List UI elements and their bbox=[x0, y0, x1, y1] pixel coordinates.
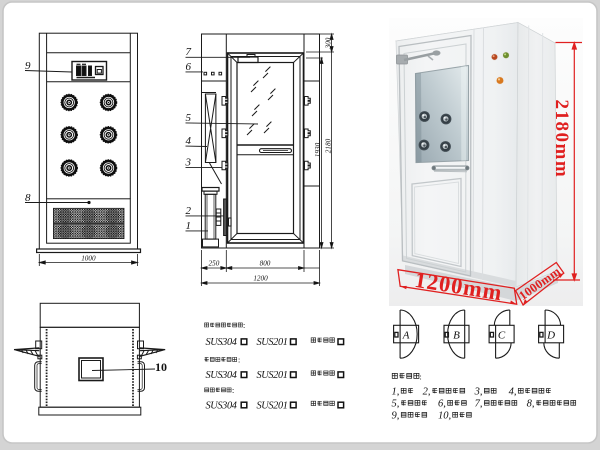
svg-text::: : bbox=[243, 321, 245, 330]
svg-text:3,: 3, bbox=[474, 386, 483, 397]
svg-text:SUS201: SUS201 bbox=[257, 337, 288, 348]
svg-text::: : bbox=[238, 356, 240, 365]
svg-text:7,: 7, bbox=[475, 399, 483, 410]
svg-text:2: 2 bbox=[186, 205, 192, 217]
svg-text:SUS304: SUS304 bbox=[206, 337, 237, 348]
svg-text:8,: 8, bbox=[527, 399, 535, 410]
svg-text:SUS201: SUS201 bbox=[257, 400, 288, 411]
svg-text:SUS201: SUS201 bbox=[257, 370, 288, 381]
svg-text::: : bbox=[420, 373, 422, 382]
svg-text:250: 250 bbox=[209, 260, 220, 268]
svg-text:1: 1 bbox=[186, 220, 192, 232]
svg-text:10: 10 bbox=[155, 360, 167, 374]
svg-text:1200: 1200 bbox=[253, 275, 268, 283]
svg-text:9,: 9, bbox=[392, 410, 400, 421]
svg-text:3: 3 bbox=[185, 157, 192, 169]
svg-text:B: B bbox=[453, 330, 460, 342]
svg-text:SUS304: SUS304 bbox=[206, 370, 237, 381]
svg-text:C: C bbox=[498, 330, 506, 342]
svg-text:5: 5 bbox=[186, 112, 192, 124]
svg-text:800: 800 bbox=[260, 260, 271, 268]
svg-text:300: 300 bbox=[325, 37, 333, 49]
svg-text:SUS304: SUS304 bbox=[206, 400, 237, 411]
svg-text:6,: 6, bbox=[438, 399, 446, 410]
svg-text:D: D bbox=[546, 330, 555, 342]
svg-text:2180mm: 2180mm bbox=[551, 100, 572, 179]
svg-text:2,: 2, bbox=[423, 386, 431, 397]
svg-text:6: 6 bbox=[186, 61, 192, 73]
svg-text::: : bbox=[232, 386, 234, 395]
svg-text:1930: 1930 bbox=[314, 142, 322, 157]
svg-text:A: A bbox=[402, 330, 410, 342]
svg-text:2180: 2180 bbox=[324, 138, 332, 153]
svg-text:4,: 4, bbox=[509, 386, 517, 397]
svg-text:1,: 1, bbox=[392, 386, 400, 397]
svg-text:4: 4 bbox=[186, 135, 192, 147]
svg-text:10,: 10, bbox=[438, 410, 451, 421]
svg-text:1000: 1000 bbox=[81, 255, 96, 263]
svg-text:7: 7 bbox=[186, 46, 192, 58]
svg-text:5,: 5, bbox=[392, 399, 400, 410]
